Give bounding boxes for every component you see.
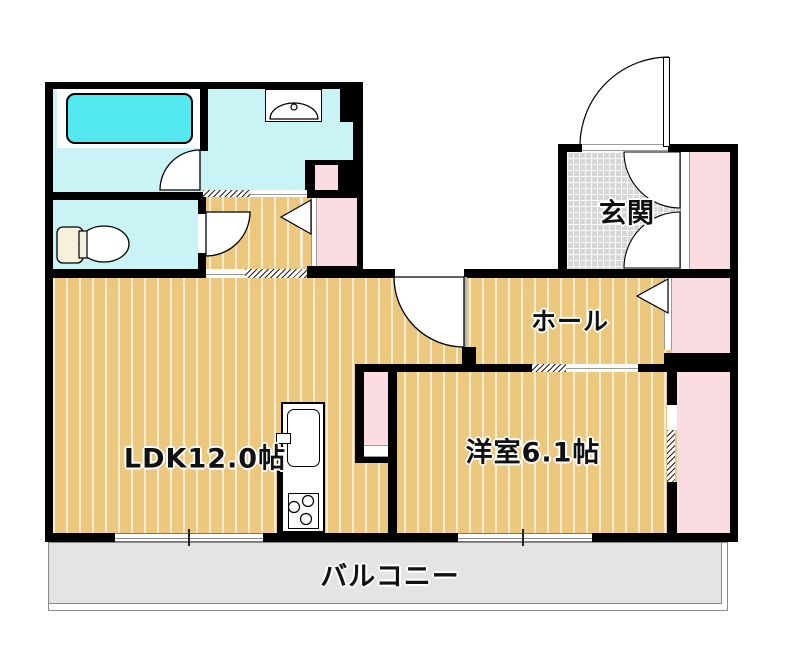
- corridor-ldk-sliding-panel: [206, 269, 245, 278]
- wall: [464, 269, 738, 278]
- hall-label: ホール: [531, 302, 609, 338]
- bathtub-icon: [66, 93, 193, 144]
- floorplan: 玄関 ホール LDK12.0帖 洋室6.1帖 バルコニー: [0, 0, 800, 669]
- kitchen-sink: [287, 409, 320, 467]
- wall: [664, 353, 738, 372]
- wall: [638, 364, 667, 372]
- stove-icon: [288, 493, 319, 529]
- entrance-door-sill: [582, 144, 668, 151]
- wall: [558, 144, 567, 270]
- wall: [592, 533, 738, 542]
- wall: [558, 144, 582, 152]
- wall: [45, 533, 115, 542]
- pipe-space: [315, 165, 338, 190]
- entrance-closet: [690, 152, 730, 269]
- wall: [263, 533, 458, 542]
- ldk-window-center-mark: [188, 529, 190, 546]
- corridor-ldk-sliding-hatch: [245, 269, 307, 278]
- wall: [307, 269, 395, 278]
- front-door-arc: [580, 57, 669, 146]
- washroom-sliding-door-hatch: [203, 190, 250, 197]
- wall: [340, 82, 363, 122]
- front-door-leaf: [663, 57, 670, 147]
- hall-western-room-sliding-panel: [566, 364, 638, 372]
- wall: [315, 160, 338, 165]
- western-closet-sliding-hatch: [667, 430, 675, 482]
- corridor-closet: [317, 198, 357, 266]
- ldk-closet: [364, 371, 389, 445]
- ldk-hall-door-leaf: [462, 277, 467, 347]
- wall: [307, 190, 363, 198]
- wall: [353, 122, 363, 160]
- balcony-label: バルコニー: [320, 555, 459, 594]
- wall: [198, 197, 206, 214]
- hall-closet-door-face: [664, 278, 672, 350]
- wall: [668, 144, 738, 152]
- wall: [355, 364, 364, 463]
- western-room-balcony-window: [458, 533, 592, 542]
- wall: [45, 192, 206, 200]
- wall: [45, 82, 53, 542]
- wall: [667, 372, 677, 405]
- hall-western-room-sliding-hatch: [532, 364, 566, 372]
- wall: [730, 144, 738, 542]
- wall: [198, 253, 206, 270]
- wall: [388, 364, 397, 533]
- western-closet-opening: [667, 405, 677, 430]
- washbasin-counter: [265, 89, 322, 122]
- wall: [305, 160, 315, 193]
- wall: [45, 82, 363, 89]
- corridor-floor: [206, 197, 311, 278]
- wall: [355, 457, 397, 463]
- washroom-sliding-door-panel: [250, 190, 307, 197]
- ldk-hall-door-opening: [395, 269, 464, 278]
- toilet-floor: [53, 200, 198, 269]
- hall-closet: [672, 278, 730, 353]
- wall: [338, 160, 363, 193]
- wall: [45, 269, 206, 278]
- wall: [357, 198, 363, 270]
- western-room-closet: [677, 372, 730, 533]
- ldk-closet-door-face: [363, 445, 389, 457]
- ldk-label: LDK12.0帖: [124, 437, 286, 476]
- entrance-closet-door-face: [680, 152, 690, 270]
- entrance-label: 玄関: [599, 192, 655, 231]
- wall: [667, 482, 677, 533]
- western-window-center-mark: [522, 529, 524, 546]
- wall: [200, 89, 208, 151]
- western-room-label: 洋室6.1帖: [466, 431, 601, 470]
